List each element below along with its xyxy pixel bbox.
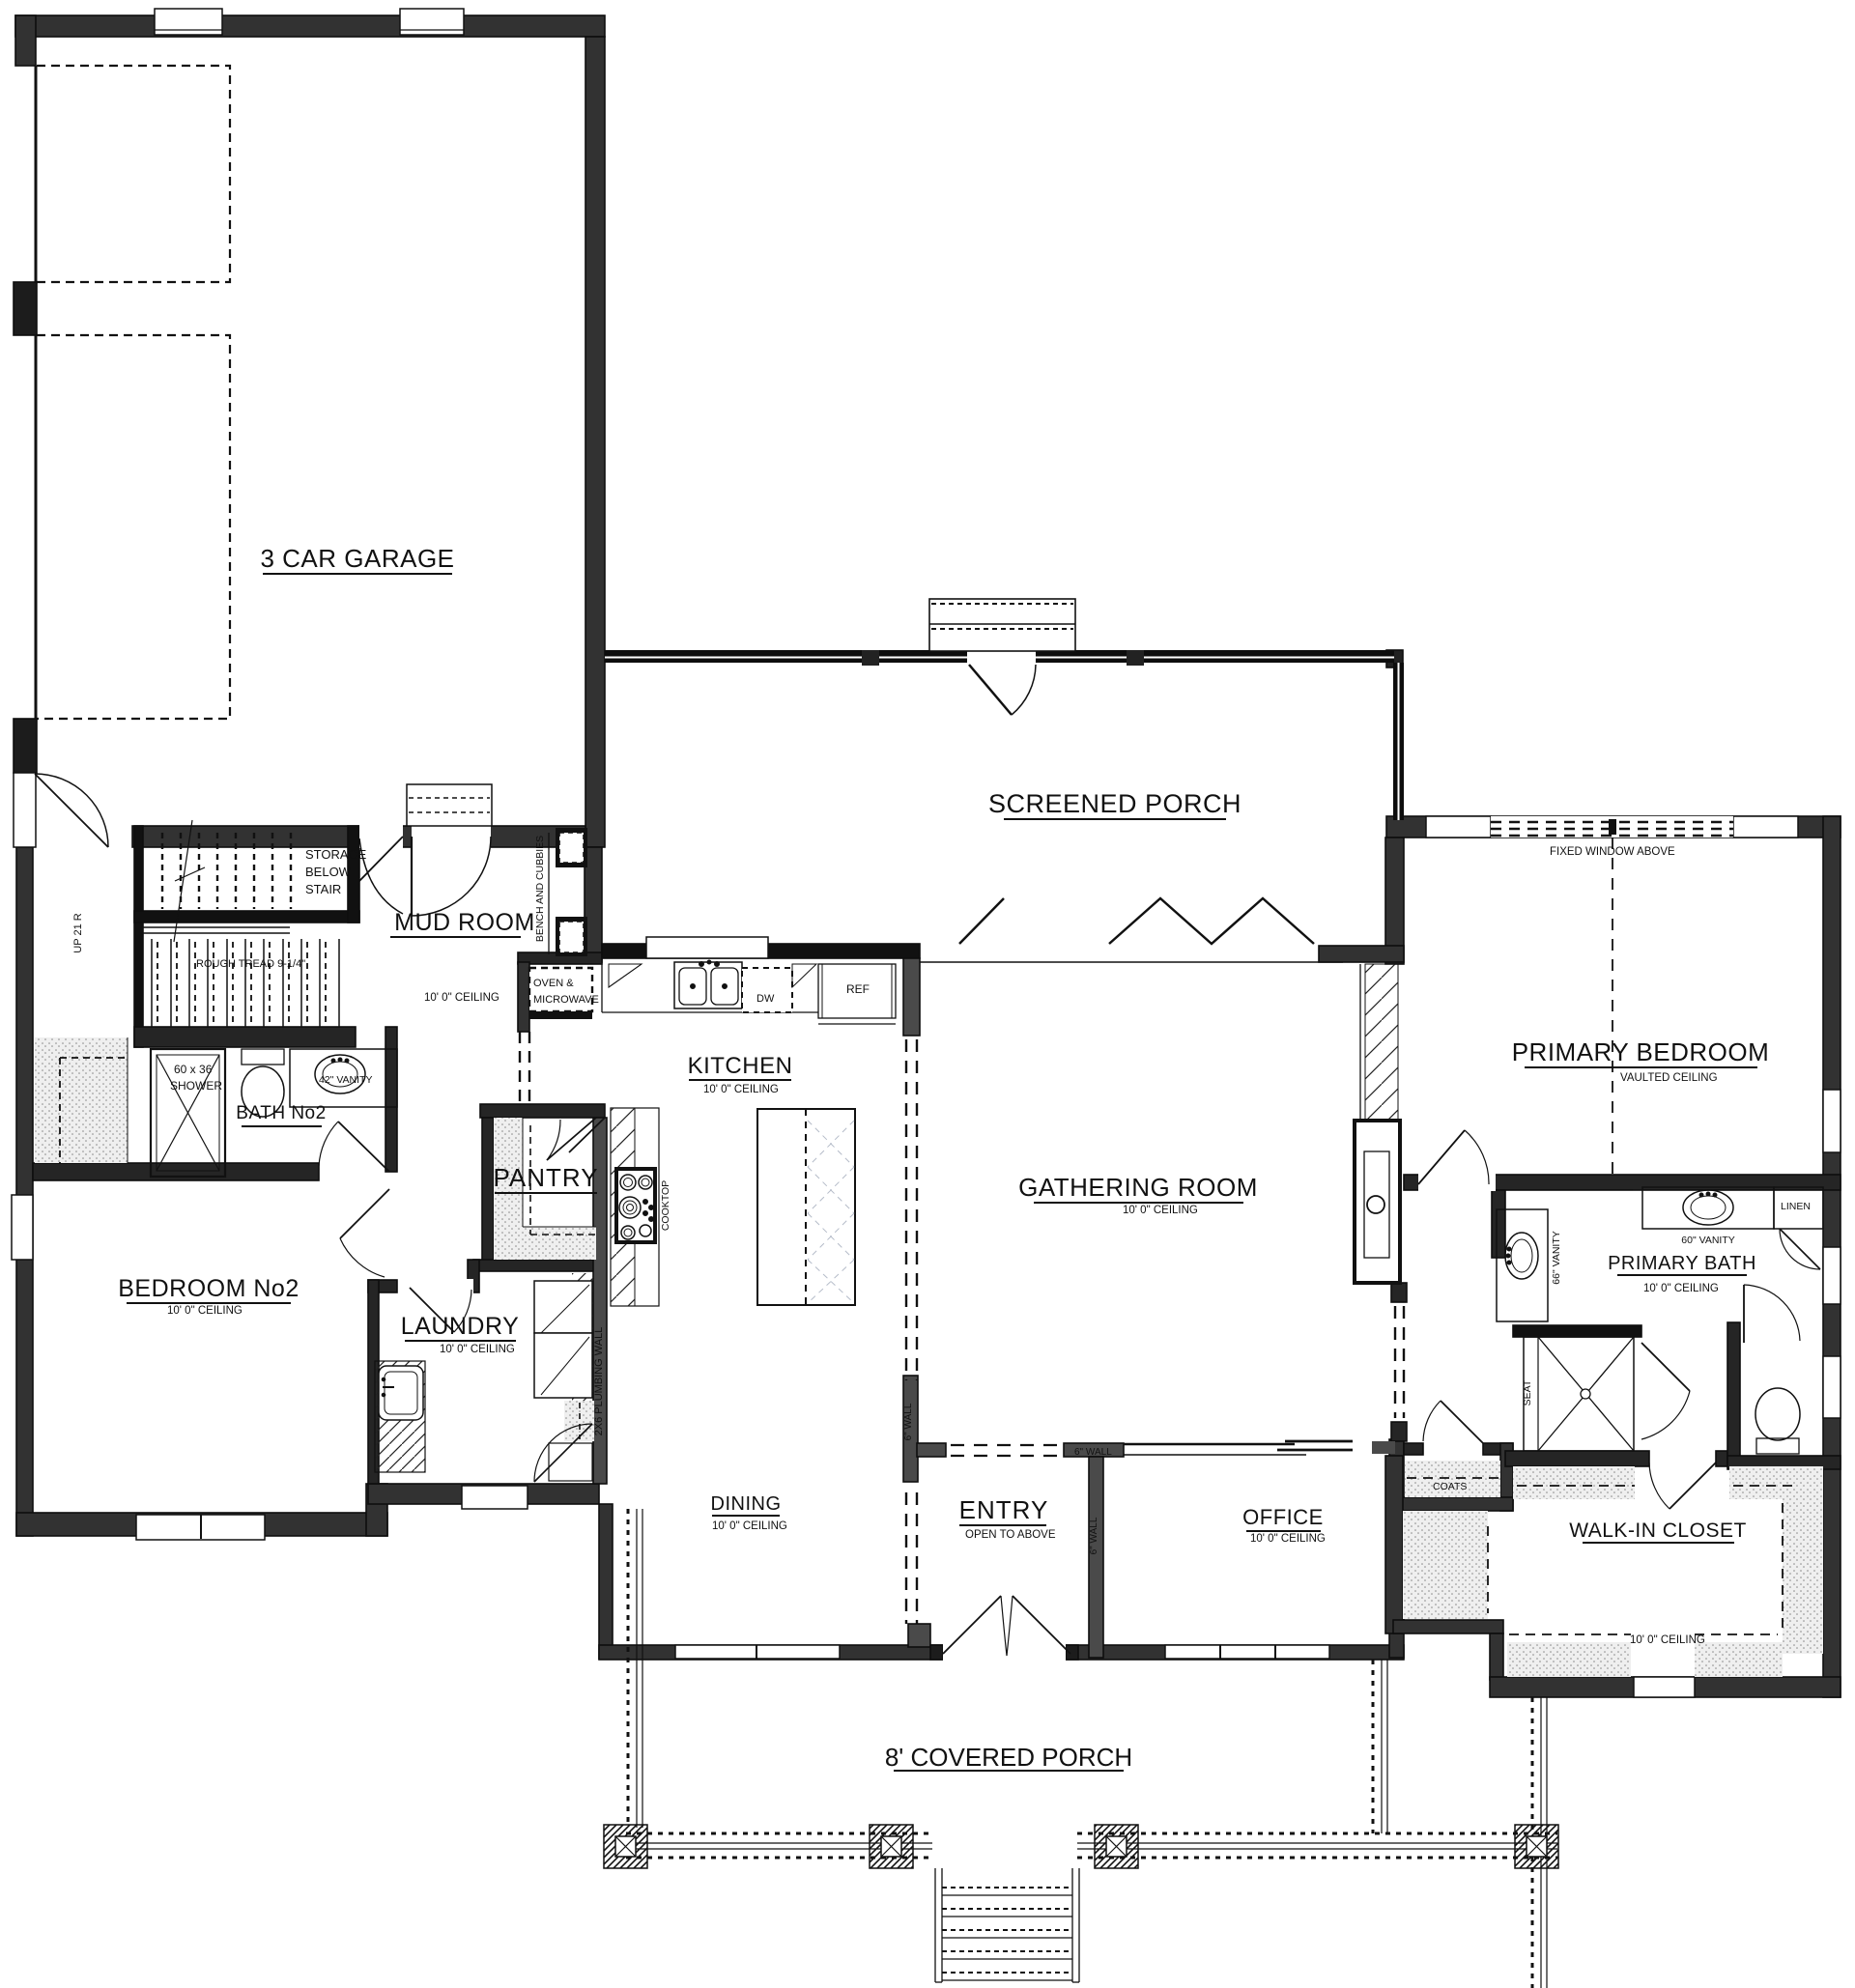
svg-text:DINING: DINING bbox=[711, 1493, 782, 1515]
svg-text:6" WALL: 6" WALL bbox=[903, 1403, 914, 1440]
svg-text:8' COVERED PORCH: 8' COVERED PORCH bbox=[885, 1743, 1132, 1772]
svg-text:SEAT: SEAT bbox=[1522, 1379, 1533, 1406]
svg-text:60 x 36: 60 x 36 bbox=[174, 1063, 213, 1076]
svg-text:6" WALL: 6" WALL bbox=[1074, 1447, 1112, 1458]
svg-text:BEDROOM No2: BEDROOM No2 bbox=[118, 1275, 299, 1302]
svg-text:PRIMARY BEDROOM: PRIMARY BEDROOM bbox=[1512, 1037, 1770, 1066]
svg-text:OPEN TO ABOVE: OPEN TO ABOVE bbox=[965, 1529, 1056, 1541]
svg-text:PRIMARY BATH: PRIMARY BATH bbox=[1608, 1253, 1756, 1274]
svg-text:COOKTOP: COOKTOP bbox=[660, 1180, 671, 1231]
svg-text:BATH No2: BATH No2 bbox=[236, 1103, 326, 1123]
svg-text:KITCHEN: KITCHEN bbox=[688, 1053, 793, 1079]
svg-text:60" VANITY: 60" VANITY bbox=[1681, 1235, 1734, 1246]
svg-text:10' 0" CEILING: 10' 0" CEILING bbox=[424, 992, 499, 1004]
svg-text:DW: DW bbox=[756, 993, 775, 1005]
svg-text:10' 0" CEILING: 10' 0" CEILING bbox=[712, 1520, 787, 1532]
svg-text:SHOWER: SHOWER bbox=[170, 1079, 222, 1093]
svg-text:FIXED WINDOW ABOVE: FIXED WINDOW ABOVE bbox=[1550, 846, 1675, 858]
svg-text:66" VANITY: 66" VANITY bbox=[1551, 1231, 1562, 1284]
svg-text:10' 0" CEILING: 10' 0" CEILING bbox=[703, 1084, 779, 1095]
svg-text:OFFICE: OFFICE bbox=[1242, 1505, 1324, 1529]
svg-text:2X6 PLUMBING WALL: 2X6 PLUMBING WALL bbox=[593, 1327, 605, 1436]
svg-text:10' 0" CEILING: 10' 0" CEILING bbox=[1250, 1533, 1326, 1545]
svg-text:ENTRY: ENTRY bbox=[959, 1495, 1049, 1524]
svg-text:STAIR: STAIR bbox=[305, 882, 341, 896]
svg-text:10' 0" CEILING: 10' 0" CEILING bbox=[1643, 1283, 1719, 1294]
svg-text:STORAGE: STORAGE bbox=[305, 847, 367, 862]
svg-text:6" WALL: 6" WALL bbox=[1089, 1517, 1099, 1554]
svg-text:REF: REF bbox=[846, 982, 870, 996]
svg-text:COATS: COATS bbox=[1433, 1481, 1467, 1492]
svg-text:PANTRY: PANTRY bbox=[493, 1163, 598, 1192]
svg-text:LAUNDRY: LAUNDRY bbox=[401, 1313, 520, 1340]
svg-text:VAULTED CEILING: VAULTED CEILING bbox=[1620, 1072, 1718, 1084]
svg-text:SCREENED PORCH: SCREENED PORCH bbox=[988, 789, 1241, 818]
svg-text:10' 0" CEILING: 10' 0" CEILING bbox=[1630, 1634, 1705, 1646]
svg-text:WALK-IN CLOSET: WALK-IN CLOSET bbox=[1569, 1519, 1747, 1542]
svg-text:BELOW: BELOW bbox=[305, 865, 352, 879]
svg-text:OVEN &: OVEN & bbox=[533, 978, 574, 989]
svg-text:MUD ROOM: MUD ROOM bbox=[394, 909, 535, 936]
svg-text:UP 21 R: UP 21 R bbox=[72, 913, 84, 952]
svg-text:ROUGH TREAD 9-1/4": ROUGH TREAD 9-1/4" bbox=[196, 958, 305, 970]
svg-text:10' 0" CEILING: 10' 0" CEILING bbox=[167, 1305, 243, 1317]
svg-text:42" VANITY: 42" VANITY bbox=[319, 1074, 372, 1086]
svg-text:MICROWAVE: MICROWAVE bbox=[533, 994, 599, 1006]
svg-text:10' 0" CEILING: 10' 0" CEILING bbox=[1123, 1205, 1198, 1216]
svg-text:BENCH AND CUBBIES: BENCH AND CUBBIES bbox=[534, 836, 546, 942]
svg-text:GATHERING ROOM: GATHERING ROOM bbox=[1018, 1173, 1258, 1202]
svg-text:10' 0" CEILING: 10' 0" CEILING bbox=[440, 1344, 515, 1355]
svg-text:3 CAR GARAGE: 3 CAR GARAGE bbox=[260, 544, 454, 573]
svg-text:LINEN: LINEN bbox=[1781, 1201, 1811, 1212]
